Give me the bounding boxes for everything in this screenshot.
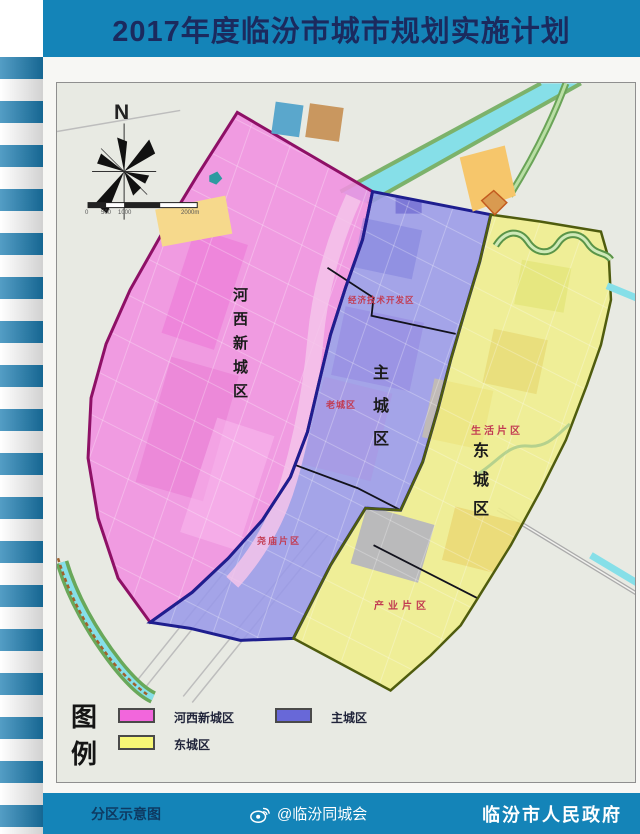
footer-caption: 分区示意图 — [91, 793, 161, 834]
strip-top-corner — [0, 0, 43, 57]
footer-weibo: @临汾同城会 — [249, 793, 367, 834]
footer-bar: 分区示意图 @临汾同城会 临汾市人民政府 — [43, 793, 640, 834]
scale-tick-500: 500 — [101, 210, 111, 216]
sub-label-life-area: 生活片区 — [471, 422, 523, 437]
map-panel: N 0 500 1000 2000m 河西新城区 主城区 东城区 经济技术开发区… — [56, 82, 636, 783]
legend-title: 图例 — [71, 699, 103, 773]
legend-swatch-east — [118, 735, 155, 750]
river-north — [340, 83, 580, 203]
page: 2017年度临汾市城市规划实施计划 — [0, 0, 640, 834]
weibo-icon — [249, 803, 271, 825]
scale-tick-2000: 2000m — [181, 210, 199, 216]
weibo-handle: @临汾同城会 — [277, 803, 367, 824]
sub-label-industry-area: 产业片区 — [374, 597, 430, 612]
legend-swatch-main — [275, 708, 312, 723]
district-label-hexi: 河西新城区 — [229, 287, 250, 407]
footer-government: 临汾市人民政府 — [482, 793, 622, 834]
legend-label-east: 东城区 — [174, 736, 210, 753]
scale-tick-1000: 1000 — [118, 210, 131, 216]
page-title: 2017年度临汾市城市规划实施计划 — [112, 8, 571, 50]
district-label-east: 东城区 — [466, 442, 490, 529]
film-strip-border — [0, 0, 43, 834]
sub-label-economic-zone: 经济技术开发区 — [348, 294, 415, 306]
map-graphic — [57, 83, 635, 782]
north-label: N — [114, 101, 129, 125]
legend-label-main: 主城区 — [331, 709, 367, 726]
district-label-main: 主城区 — [366, 364, 390, 463]
legend-label-hexi: 河西新城区 — [174, 709, 234, 726]
title-bar: 2017年度临汾市城市规划实施计划 — [43, 0, 640, 57]
sub-label-old-town: 老城区 — [326, 398, 356, 411]
scale-bar — [88, 203, 197, 208]
sub-label-yaomiao: 尧庙片区 — [257, 534, 301, 547]
legend-swatch-hexi — [118, 708, 155, 723]
scale-tick-0: 0 — [85, 210, 88, 216]
